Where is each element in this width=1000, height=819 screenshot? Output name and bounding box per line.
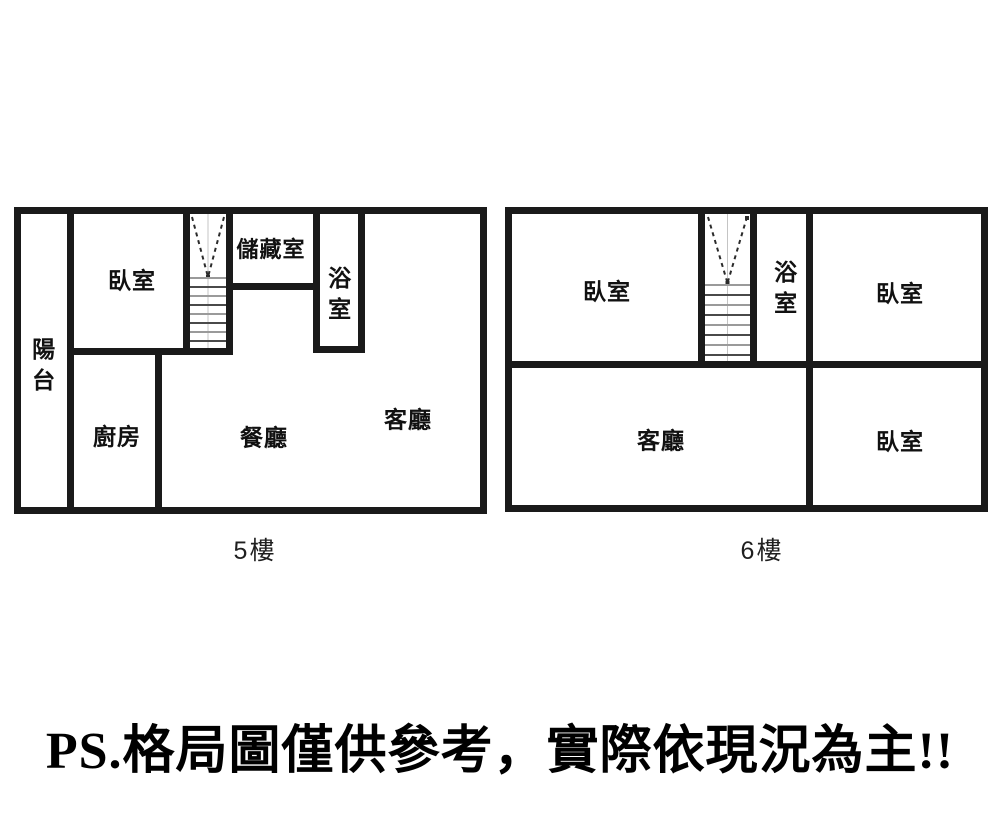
room-label-bedroom-bottom-right: 臥室 [876,429,924,454]
wall [67,214,74,507]
wall [698,214,705,361]
room-label-living: 客廳 [637,428,685,453]
floorplan-image: 陽台 臥室 儲藏室 浴室 廚房 餐廳 客廳 [0,0,1000,819]
room-label-bedroom: 臥室 [108,268,156,293]
wall [226,283,320,290]
room-label-dining: 餐廳 [240,425,288,450]
floor6-plan: 臥室 浴室 臥室 客廳 臥室 [505,207,988,512]
wall [806,214,813,361]
wall [512,361,981,368]
room-label-bathroom: 浴室 [770,260,795,322]
wall [358,214,365,353]
room-label-bedroom-top-left: 臥室 [583,279,631,304]
staircase [190,214,226,348]
staircase-icon [705,214,750,361]
floor6-caption: 6樓 [741,531,784,567]
room-label-storage: 儲藏室 [236,238,305,262]
wall [155,355,162,507]
room-label-bathroom: 浴室 [324,266,349,328]
room-label-bedroom-top-right: 臥室 [876,281,924,306]
floor5-plan: 陽台 臥室 儲藏室 浴室 廚房 餐廳 客廳 [14,207,487,514]
wall [67,348,233,355]
wall [313,214,320,353]
wall [806,368,813,505]
room-label-kitchen: 廚房 [93,424,141,449]
floor5-caption: 5樓 [234,531,277,567]
room-label-balcony: 陽台 [28,337,53,399]
staircase-icon [190,214,226,348]
wall [750,214,757,361]
room-label-living: 客廳 [384,407,432,432]
disclaimer-text: PS.格局圖僅供參考，實際依現況為主!! [46,708,954,783]
wall [183,214,190,355]
staircase [705,214,750,361]
